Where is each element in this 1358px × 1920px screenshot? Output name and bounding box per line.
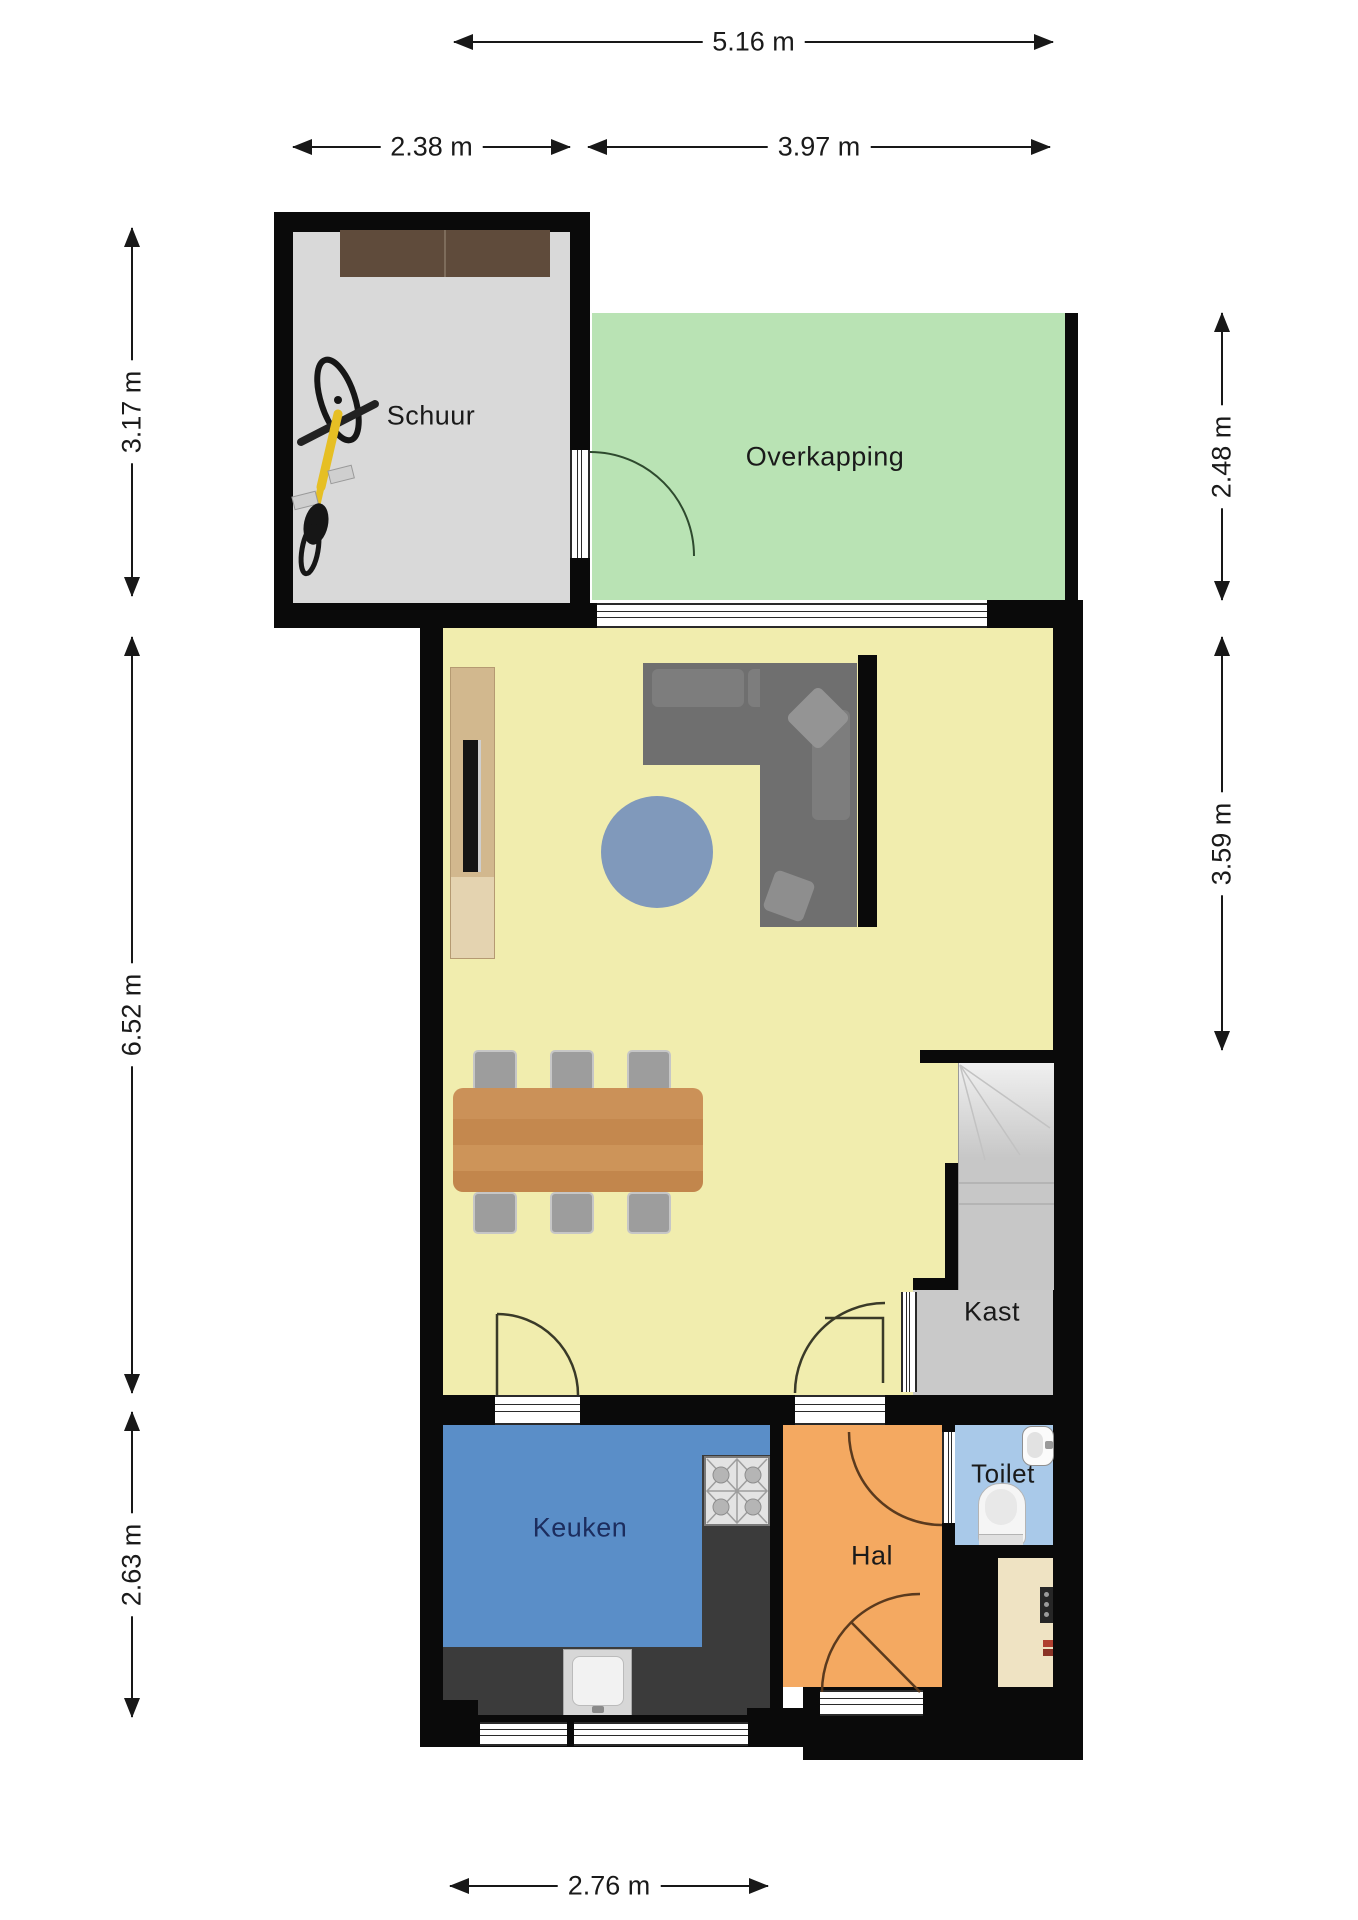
stair-step-line (959, 1203, 1054, 1205)
dimension-label: 2.48 m (1207, 405, 1238, 508)
schuur-door (570, 450, 590, 558)
meter-detail (1043, 1640, 1053, 1647)
stair-step-line (959, 1182, 1054, 1184)
stove-icon (704, 1456, 770, 1526)
dimension-label: 6.52 m (117, 964, 148, 1067)
kitchen-sink (563, 1649, 632, 1717)
dining-chair (627, 1050, 671, 1092)
shelf-divider (444, 230, 446, 277)
dimension-label: 2.63 m (117, 1513, 148, 1616)
wall-segment (920, 1050, 1055, 1063)
room-label-schuur: Schuur (387, 401, 476, 432)
dimension-label: 5.16 m (702, 27, 805, 58)
meter-detail (1043, 1649, 1053, 1656)
keuken-door-threshold (495, 1395, 580, 1425)
room-label-toilet: Toilet (971, 1459, 1035, 1490)
room-label-keuken: Keuken (533, 1513, 628, 1544)
dimension-label: 3.59 m (1207, 792, 1238, 895)
wall-segment (858, 655, 877, 927)
dimension-label: 2.38 m (380, 132, 483, 163)
dining-chair (473, 1192, 517, 1234)
round-rug (601, 796, 713, 908)
dining-chair (627, 1192, 671, 1234)
dimension-label: 3.17 m (117, 361, 148, 464)
basin-tap (1045, 1441, 1053, 1449)
front-door-threshold (820, 1690, 923, 1716)
window-divider (567, 1719, 574, 1746)
wall-segment (747, 1708, 803, 1717)
storage-shelf (340, 230, 550, 277)
keuken-window (574, 1722, 748, 1746)
dining-chair (473, 1050, 517, 1092)
wall-segment (420, 603, 443, 1747)
room-label-overkapping: Overkapping (746, 442, 905, 473)
corner-sofa-chaise (760, 663, 857, 927)
dimension-label: 3.97 m (768, 132, 871, 163)
wall-segment (420, 1700, 478, 1717)
floorplan-canvas: 5.16 m 2.38 m 3.97 m 2.76 m 3.17 m 6.52 … (0, 0, 1358, 1920)
dining-chair (550, 1050, 594, 1092)
room-label-kast: Kast (964, 1297, 1020, 1328)
dimension-label: 2.76 m (558, 1871, 661, 1902)
toilet-bowl (978, 1483, 1026, 1547)
wall-segment (770, 1425, 783, 1717)
sink-tap (592, 1706, 604, 1713)
tv (463, 740, 478, 872)
wall-segment (1053, 600, 1083, 1760)
wall-segment (942, 1558, 998, 1687)
dining-chair (550, 1192, 594, 1234)
keuken-window (480, 1722, 567, 1746)
dining-table (453, 1088, 703, 1192)
bicycle-icon (283, 352, 395, 577)
wall-segment (420, 603, 597, 628)
wall-segment (1065, 313, 1078, 600)
wall-segment (945, 1163, 958, 1290)
wall-segment (913, 1278, 958, 1290)
living-room-window-top (597, 603, 987, 628)
electrical-panel (1040, 1587, 1053, 1623)
room-keuken (702, 1425, 770, 1455)
room-label-hal: Hal (851, 1541, 893, 1572)
hal-door-threshold (795, 1395, 885, 1425)
tv-stand (478, 740, 481, 872)
wall-segment (942, 1545, 1083, 1558)
kast-door (901, 1292, 917, 1392)
staircase (958, 1063, 1054, 1290)
